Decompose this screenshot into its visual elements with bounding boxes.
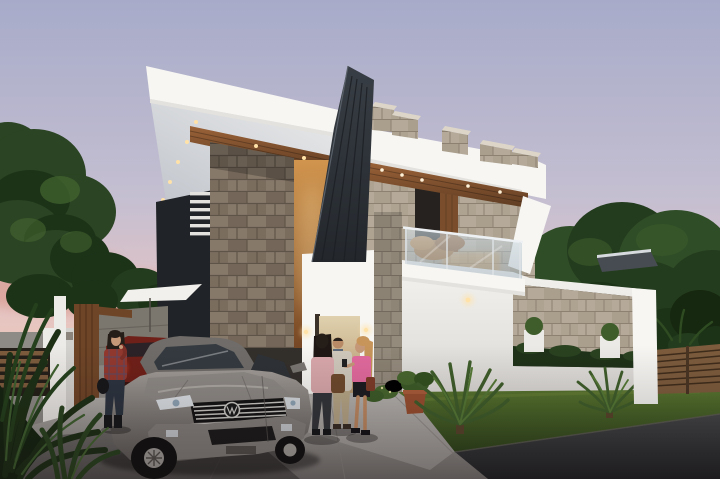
architectural-rendering: Photorealistic dusk rendering of a moder…	[0, 0, 720, 479]
vignette	[0, 0, 720, 479]
